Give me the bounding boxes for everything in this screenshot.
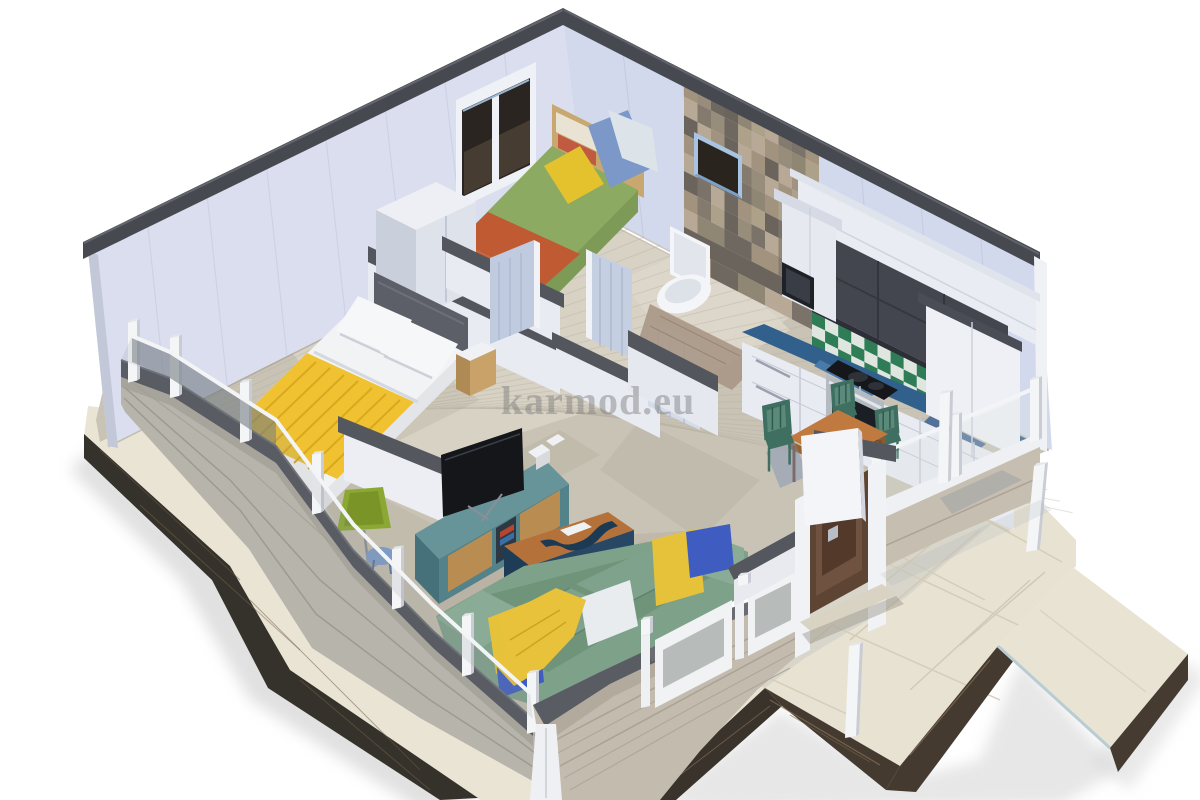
svg-text:karmod.eu: karmod.eu [501,378,696,423]
